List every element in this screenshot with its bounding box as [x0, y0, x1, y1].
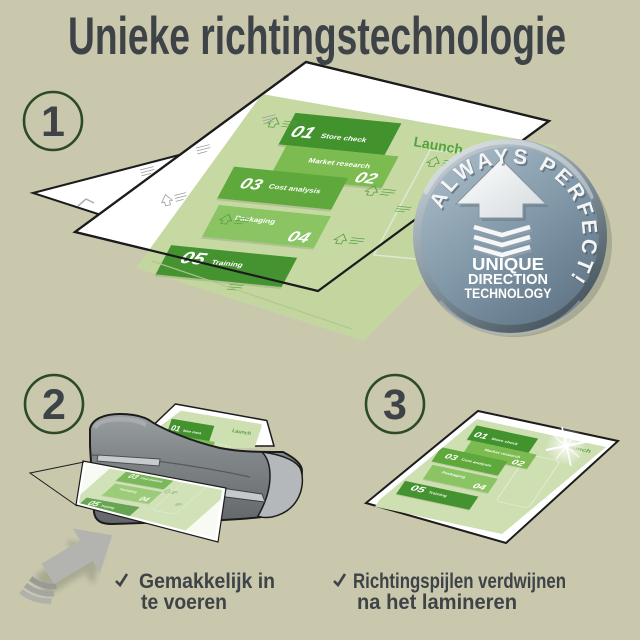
svg-text:Unieke richtingstechnologie: Unieke richtingstechnologie [68, 7, 566, 66]
svg-text:1: 1 [41, 98, 65, 146]
svg-text:te voeren: te voeren [141, 591, 227, 614]
svg-text:na het lamineren: na het lamineren [357, 591, 517, 614]
svg-text:TECHNOLOGY: TECHNOLOGY [465, 286, 552, 301]
svg-text:3: 3 [383, 381, 407, 429]
svg-text:Richtingspijlen verdwijnen: Richtingspijlen verdwijnen [353, 570, 566, 593]
svg-text:Gemakkelijk in: Gemakkelijk in [139, 570, 275, 593]
svg-text:2: 2 [42, 381, 66, 429]
